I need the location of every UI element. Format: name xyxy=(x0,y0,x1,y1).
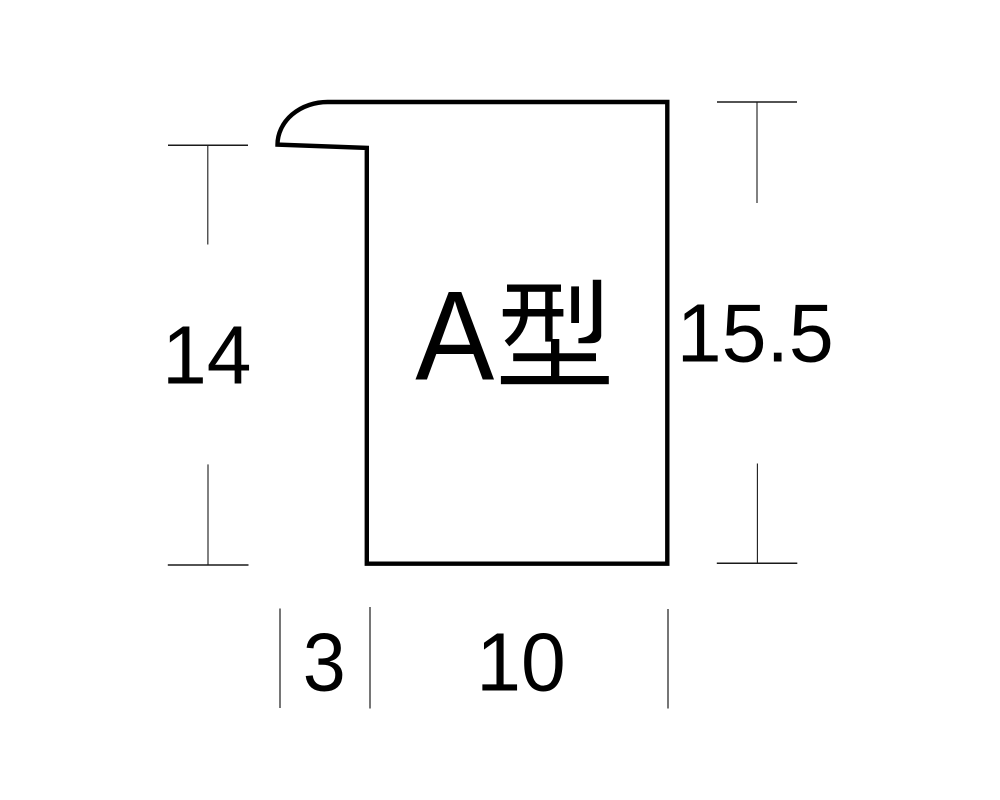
svg-text:14: 14 xyxy=(162,310,251,402)
svg-text:15.5: 15.5 xyxy=(677,287,834,379)
svg-text:A: A xyxy=(415,265,494,407)
svg-text:3: 3 xyxy=(303,617,346,709)
svg-text:10: 10 xyxy=(476,617,566,709)
